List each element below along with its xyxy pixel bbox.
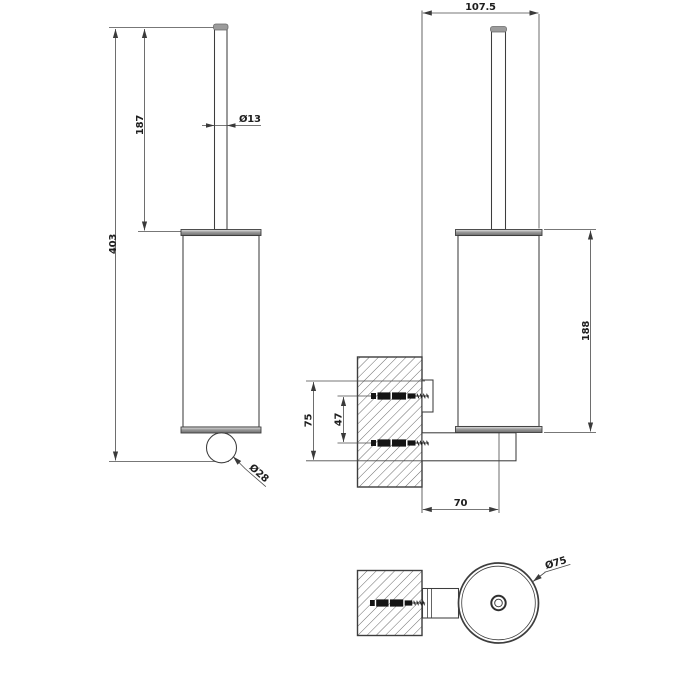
dim-label-bracket-span: 75 [304,414,315,428]
dim-label-body-diameter: Ø75 [544,554,569,572]
dim-label-handle-diameter: Ø13 [239,113,261,125]
dim-label-knob-diameter: Ø28 [247,462,272,486]
canister-lid-front [456,230,543,236]
bottom-knob-side [207,433,237,463]
body-diameter-callout: Ø75 [533,553,571,581]
canister-lid-side [181,230,261,236]
top-view: Ø75 [358,553,571,643]
side-view: Ø13 Ø28 403 187 [108,24,273,487]
drawing-canvas: Ø13 Ø28 403 187 [0,0,700,700]
dim-label-handle-length: 187 [135,115,146,136]
handle-rod-front [492,28,506,230]
handle-cap-front [491,27,507,33]
dim-label-total-height: 403 [108,234,119,255]
dim-label-body-height: 188 [581,321,592,342]
front-view: 107.5 188 75 47 70 [304,2,597,513]
canister-base-ring-side [181,427,261,433]
canister-outline-top [459,563,539,643]
handle-rod-side [215,25,228,230]
dim-label-hole-spacing: 47 [334,413,345,427]
mounting-arm-front [422,433,516,461]
body-height-dimension: 188 [544,230,596,433]
overall-depth-dimension: 107.5 [423,2,539,229]
hole-spacing-dimension: 47 [334,397,345,442]
canister-body-side [183,236,259,428]
rod-diameter-callout: Ø13 [202,113,261,128]
wall-section-hatch-front [358,357,423,487]
technical-drawing: Ø13 Ø28 403 187 [0,0,700,700]
dim-label-overall-depth: 107.5 [465,2,496,13]
knob-diameter-callout: Ø28 [233,457,273,488]
handle-cap-side [214,24,229,30]
canister-body-front [458,236,539,427]
dim-label-wall-to-axis: 70 [454,498,468,509]
canister-base-ring-front [456,427,543,433]
